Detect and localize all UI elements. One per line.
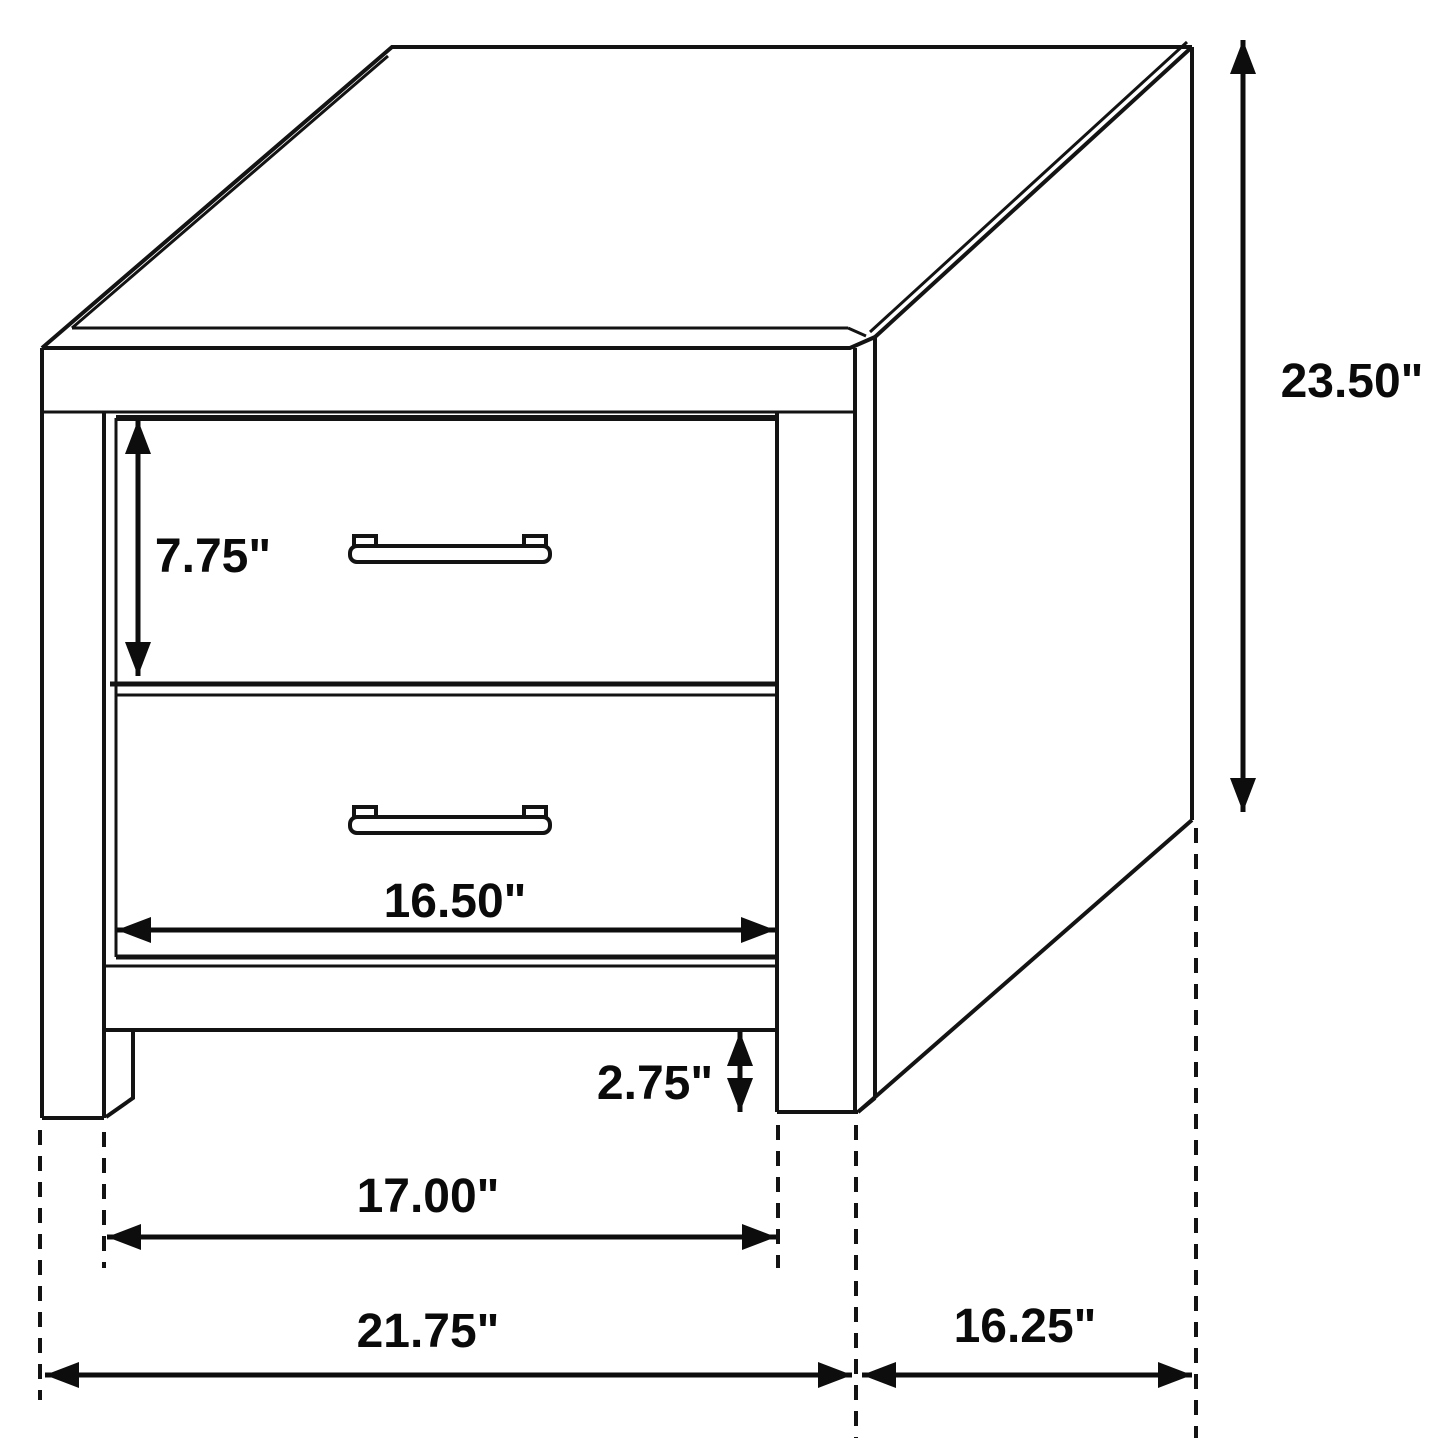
drawer2-handle	[350, 807, 550, 833]
top-face-front-edge	[42, 337, 875, 348]
side-face	[858, 47, 1192, 1112]
overall-height-label: 23.50"	[1281, 355, 1424, 408]
drawer-width-label: 16.50"	[384, 875, 527, 928]
top-slab-inner-left-slant	[72, 56, 388, 328]
top-slab-inner-right-chamfer	[848, 328, 866, 336]
side-bottom-edge	[858, 820, 1192, 1112]
drawer2-handle-bar	[350, 817, 550, 833]
top-face-left-and-back-edge	[42, 47, 1192, 348]
overall-depth-label: 16.25"	[954, 1300, 1097, 1353]
overall-width-label: 21.75"	[357, 1305, 500, 1358]
dimension-labels: 23.50" 7.75" 16.50" 2.75" 17.00" 21.75" …	[155, 355, 1424, 1358]
drawer1-handle-bar	[350, 546, 550, 562]
top-face-right-slant-inner	[870, 42, 1187, 332]
drawer1-handle	[350, 536, 550, 562]
front-face	[42, 337, 875, 1118]
dimension-arrows	[45, 40, 1243, 1375]
nightstand-dimension-diagram: 23.50" 7.75" 16.50" 2.75" 17.00" 21.75" …	[0, 0, 1445, 1445]
foot-height-label: 2.75"	[597, 1057, 713, 1110]
inner-leg-span-label: 17.00"	[357, 1170, 500, 1223]
top-face	[42, 42, 1192, 348]
diagram-canvas: 23.50" 7.75" 16.50" 2.75" 17.00" 21.75" …	[0, 0, 1445, 1445]
top-face-right-slant-outer	[875, 47, 1192, 337]
left-leg-inner-side	[106, 1030, 133, 1117]
top-drawer-height-label: 7.75"	[155, 530, 271, 583]
